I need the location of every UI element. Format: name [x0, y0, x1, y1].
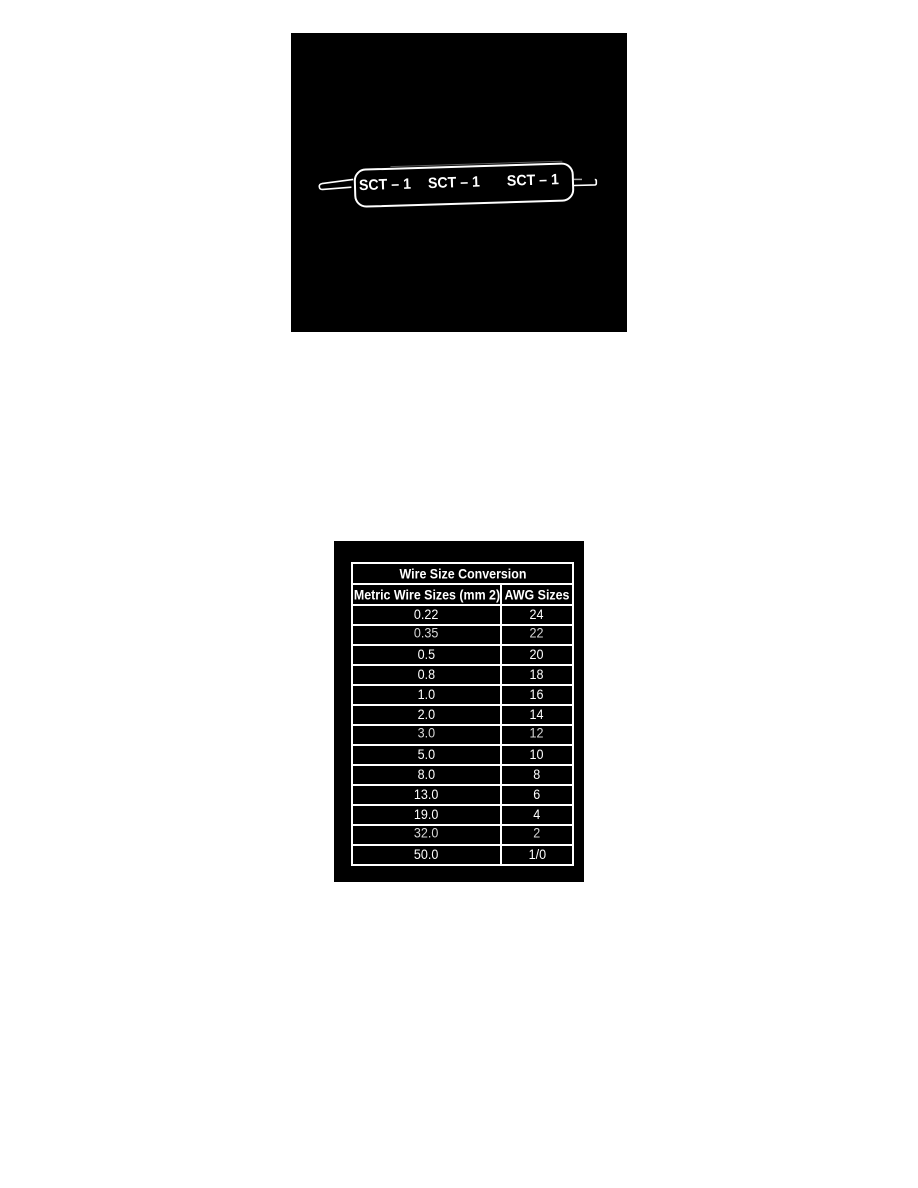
- svg-text:SCT – 1: SCT – 1: [359, 176, 411, 195]
- svg-text:SCT – 1: SCT – 1: [428, 174, 480, 193]
- svg-text:SCT – 1: SCT – 1: [507, 171, 559, 190]
